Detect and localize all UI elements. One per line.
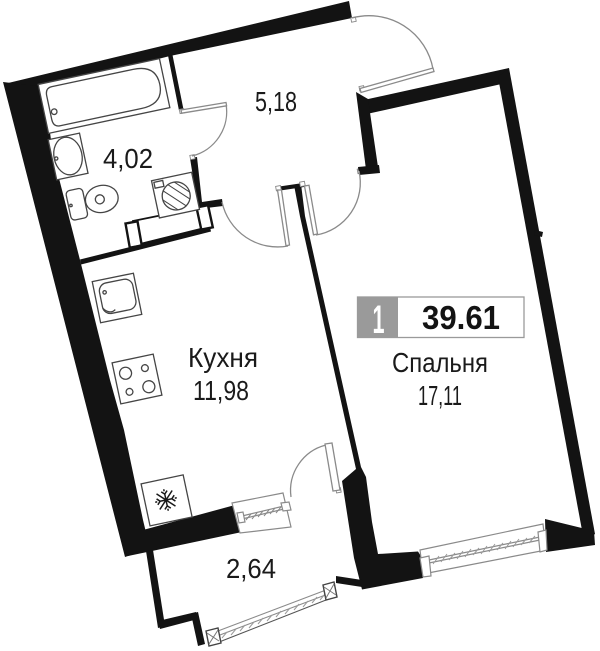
svg-text:17,11: 17,11 bbox=[418, 380, 462, 411]
svg-text:11,98: 11,98 bbox=[193, 375, 249, 406]
svg-text:5,18: 5,18 bbox=[255, 86, 297, 117]
svg-text:39.61: 39.61 bbox=[422, 299, 500, 336]
svg-text:4,02: 4,02 bbox=[103, 143, 153, 174]
svg-text:Кухня: Кухня bbox=[188, 342, 258, 373]
svg-text:Спальня: Спальня bbox=[392, 347, 488, 378]
svg-text:2,64: 2,64 bbox=[226, 553, 276, 584]
svg-text:1: 1 bbox=[373, 298, 385, 342]
